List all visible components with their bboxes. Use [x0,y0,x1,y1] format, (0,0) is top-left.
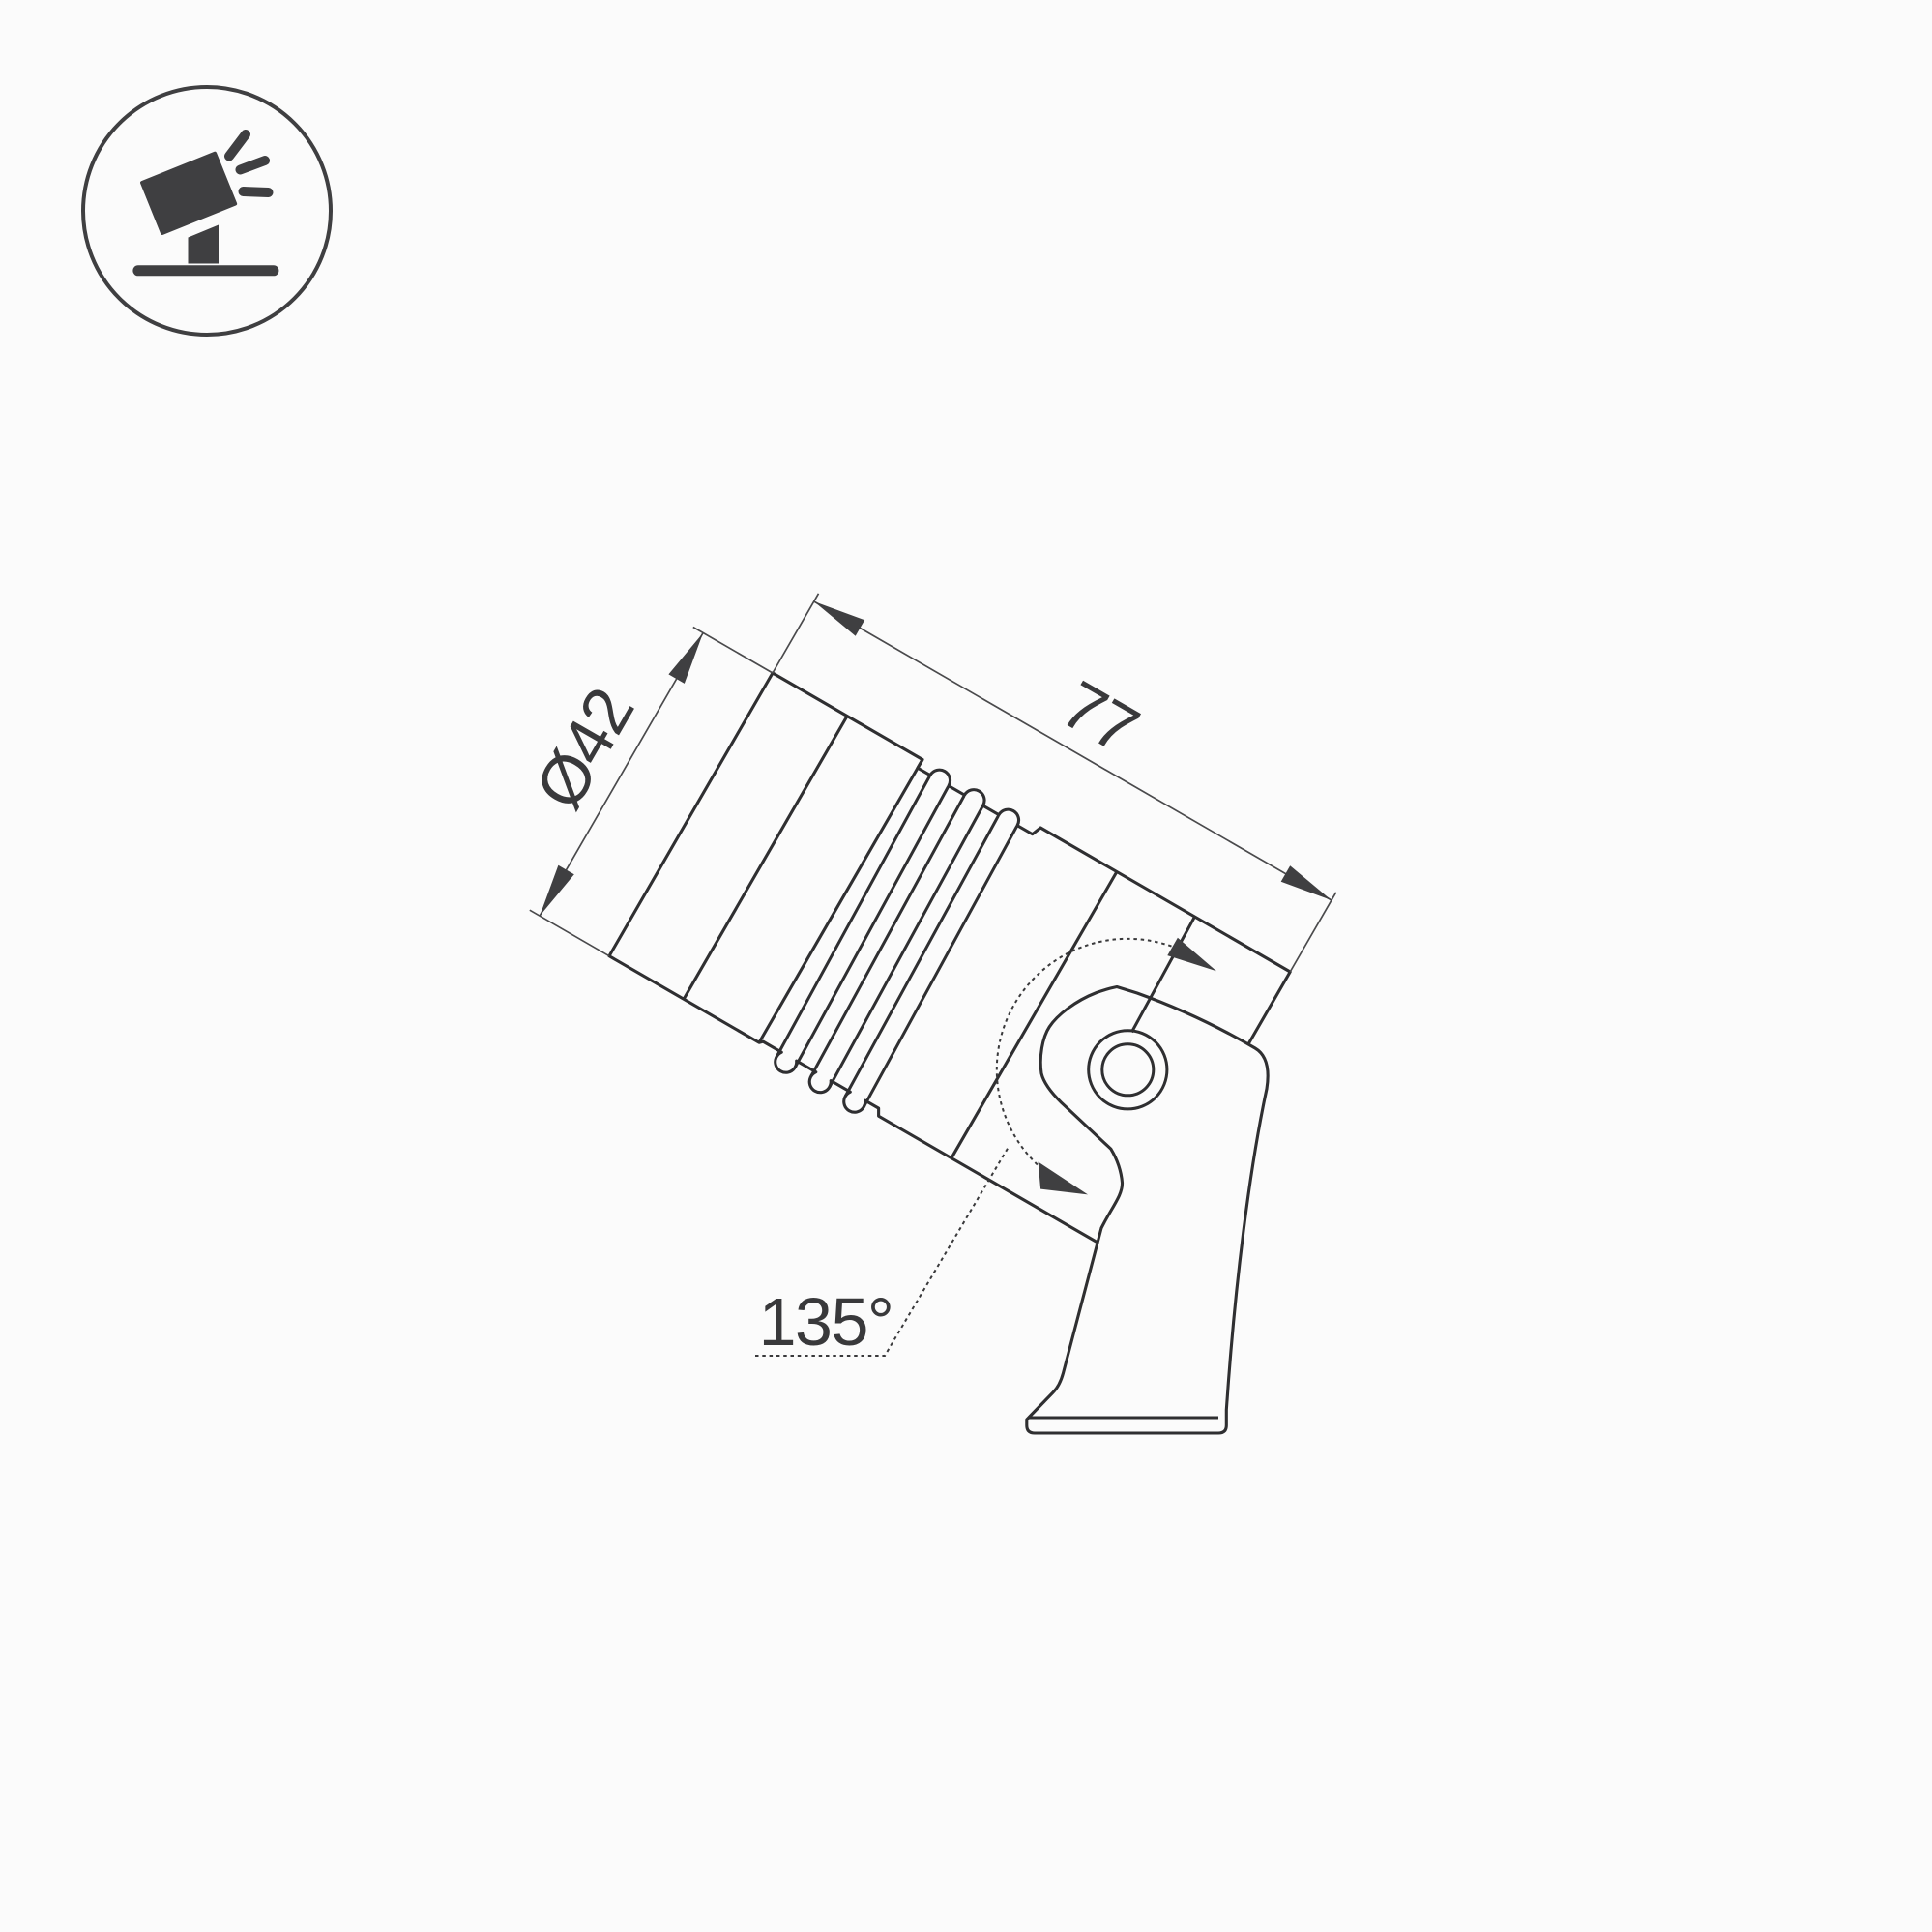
svg-text:135°: 135° [759,1284,893,1360]
